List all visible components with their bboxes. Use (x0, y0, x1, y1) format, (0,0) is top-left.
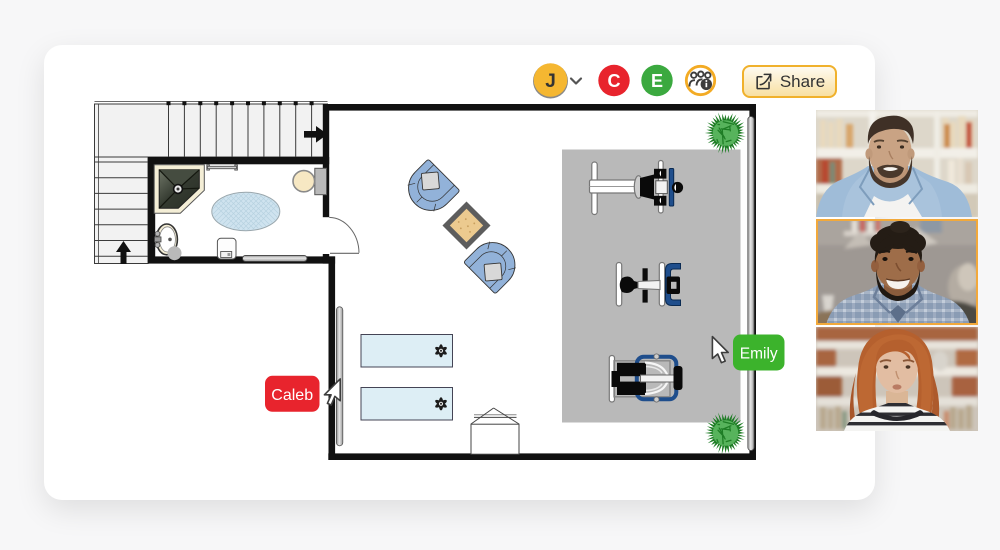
svg-text:E: E (651, 71, 663, 91)
svg-text:Caleb: Caleb (271, 387, 313, 404)
svg-text:J: J (545, 71, 556, 92)
svg-text:Emily: Emily (740, 346, 778, 363)
svg-text:C: C (608, 71, 621, 91)
